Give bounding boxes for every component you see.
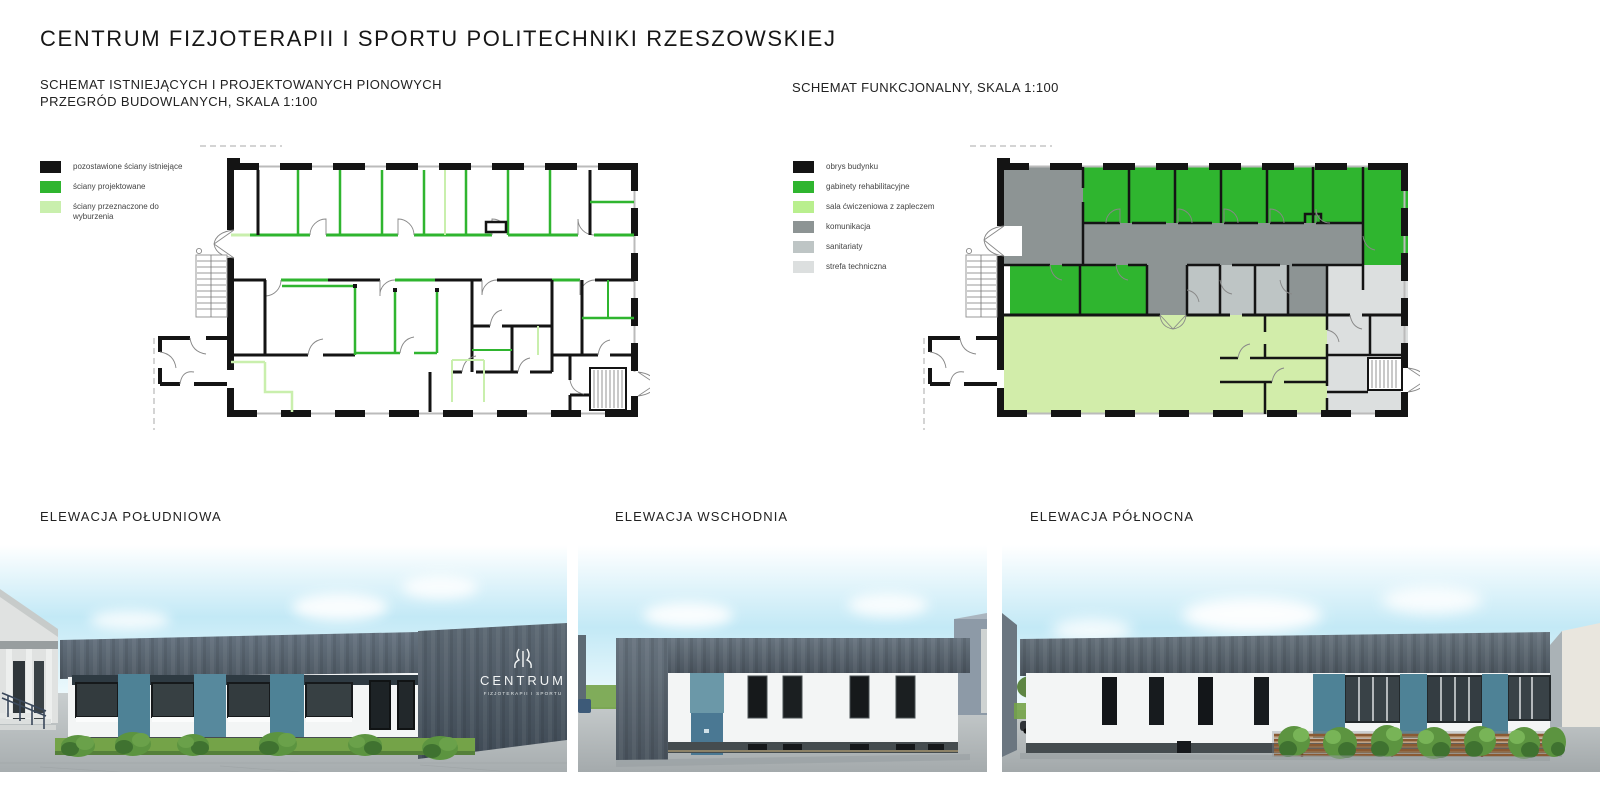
entrance-annex bbox=[158, 338, 227, 384]
elevation-title-north: ELEWACJA PÓŁNOCNA bbox=[1030, 509, 1194, 524]
legend-swatch bbox=[793, 201, 814, 213]
entrance-annex bbox=[928, 338, 997, 384]
elevation-south-render: CENTRUM FIZJOTERAPII I SPORTU bbox=[0, 545, 567, 772]
context-building-right bbox=[1550, 623, 1600, 727]
legend-label: sanitariaty bbox=[826, 241, 862, 252]
legend-swatch bbox=[40, 161, 61, 173]
teal-panel bbox=[690, 673, 724, 713]
plan-right-title: SCHEMAT FUNKCJONALNY, SKALA 1:100 bbox=[792, 80, 1272, 97]
zone-fills bbox=[1004, 167, 1408, 414]
legend-label: sala ćwiczeniowa z zapleczem bbox=[826, 201, 935, 212]
legend-item: strefa techniczna bbox=[793, 261, 935, 273]
stairs-symbol bbox=[966, 248, 997, 317]
legend-swatch bbox=[793, 161, 814, 173]
context-car bbox=[578, 699, 591, 713]
legend-right: obrys budynku gabinety rehabilitacyjne s… bbox=[793, 161, 935, 281]
logo-subtitle: FIZJOTERAPII I SPORTU bbox=[484, 691, 563, 696]
legend-label: komunikacja bbox=[826, 221, 870, 232]
elevation-north-render bbox=[1002, 545, 1600, 772]
legend-item: sanitariaty bbox=[793, 241, 935, 253]
legend-swatch bbox=[793, 241, 814, 253]
glazed-band-right bbox=[1345, 676, 1550, 722]
legend-swatch bbox=[40, 201, 61, 213]
legend-swatch bbox=[793, 181, 814, 193]
left-floor-plan bbox=[150, 140, 650, 430]
legend-label: strefa techniczna bbox=[826, 261, 886, 272]
legend-label: gabinety rehabilitacyjne bbox=[826, 181, 910, 192]
legend-item: komunikacja bbox=[793, 221, 935, 233]
legend-swatch bbox=[40, 181, 61, 193]
elevation-east-render bbox=[578, 545, 987, 772]
right-floor-plan bbox=[920, 140, 1420, 430]
legend-item: obrys budynku bbox=[793, 161, 935, 173]
main-facade bbox=[616, 638, 970, 760]
stairs-symbol bbox=[196, 248, 227, 317]
elevation-title-east: ELEWACJA WSCHODNIA bbox=[615, 509, 788, 524]
plan-left-title: SCHEMAT ISTNIEJĄCYCH I PROJEKTOWANYCH PI… bbox=[40, 77, 520, 110]
legend-label: ściany przeznaczone do wyburzenia bbox=[73, 201, 159, 221]
logo-name: CENTRUM bbox=[480, 673, 566, 688]
legend-swatch bbox=[793, 261, 814, 273]
legend-label: obrys budynku bbox=[826, 161, 878, 172]
stairs-symbol-inner bbox=[590, 368, 626, 410]
page-title: CENTRUM FIZJOTERAPII I SPORTU POLITECHNI… bbox=[40, 26, 837, 52]
basement-door bbox=[1177, 741, 1191, 753]
legend-swatch bbox=[793, 221, 814, 233]
legend-item: sala ćwiczeniowa z zapleczem bbox=[793, 201, 935, 213]
legend-label: ściany projektowane bbox=[73, 181, 145, 192]
elevation-title-south: ELEWACJA POŁUDNIOWA bbox=[40, 509, 222, 524]
stairs-symbol-inner bbox=[1368, 358, 1402, 390]
context-building-left bbox=[578, 635, 586, 707]
legend-item: gabinety rehabilitacyjne bbox=[793, 181, 935, 193]
